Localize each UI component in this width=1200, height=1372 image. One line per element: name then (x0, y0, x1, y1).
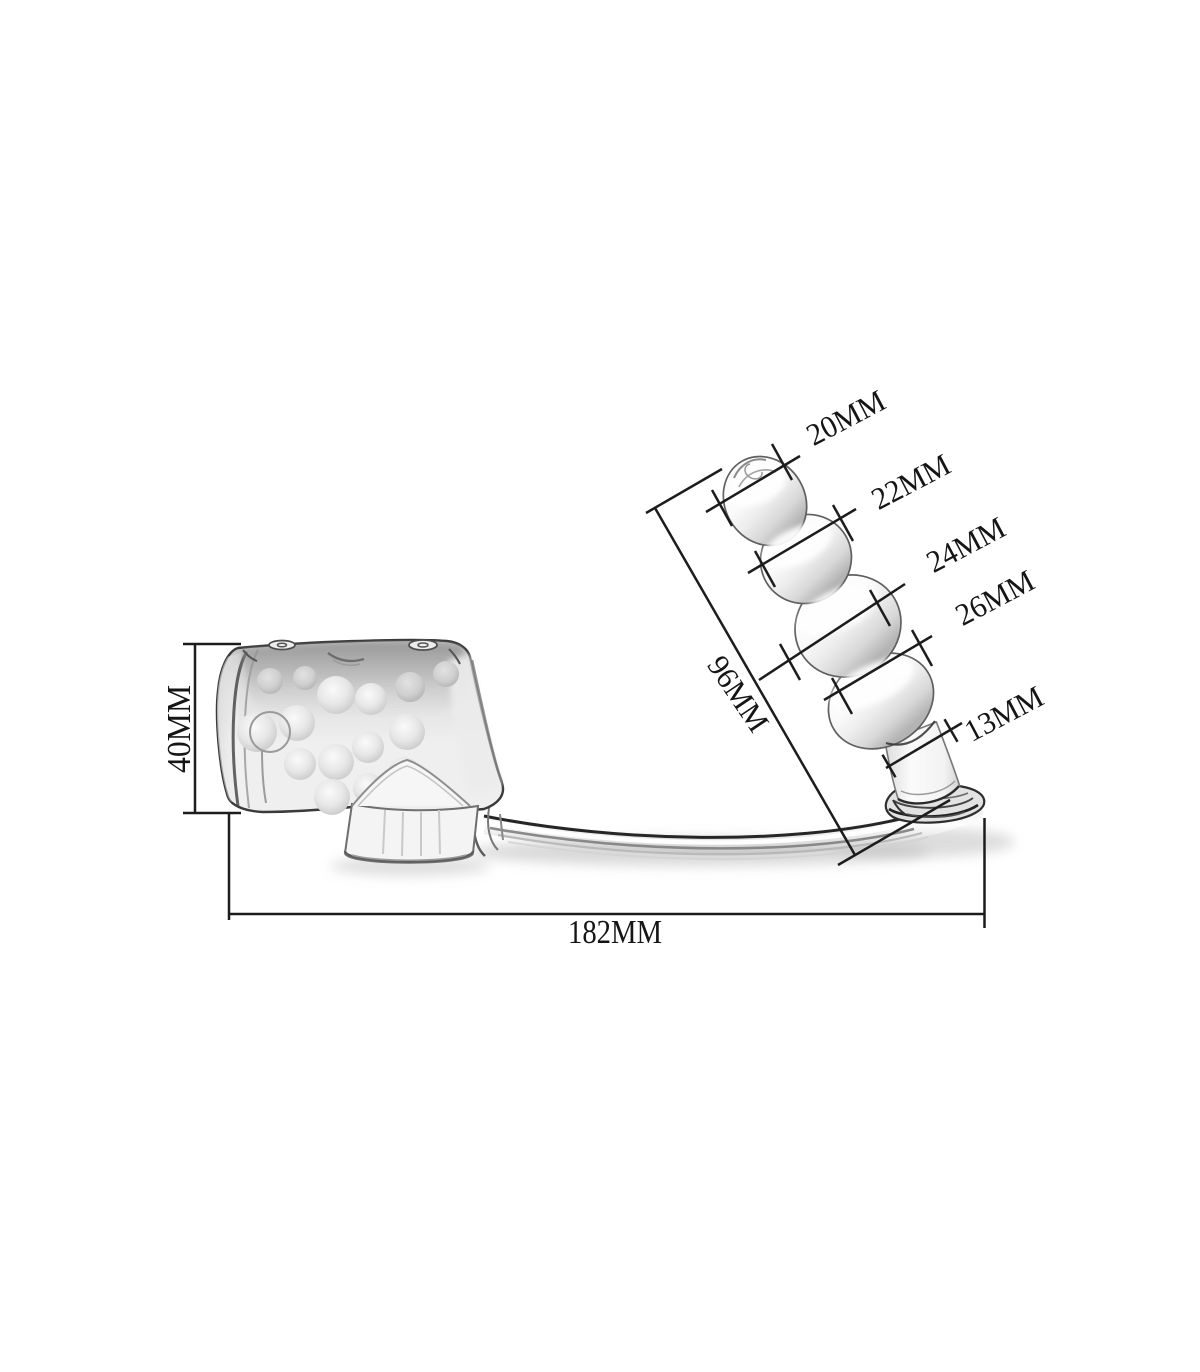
svg-text:40MM: 40MM (161, 685, 198, 773)
svg-text:13MM: 13MM (958, 679, 1049, 749)
svg-text:22MM: 22MM (865, 447, 956, 517)
svg-text:96MM: 96MM (700, 649, 776, 738)
svg-text:182MM: 182MM (568, 914, 662, 951)
svg-text:20MM: 20MM (800, 383, 891, 453)
svg-text:24MM: 24MM (920, 510, 1011, 580)
svg-text:26MM: 26MM (949, 563, 1040, 633)
